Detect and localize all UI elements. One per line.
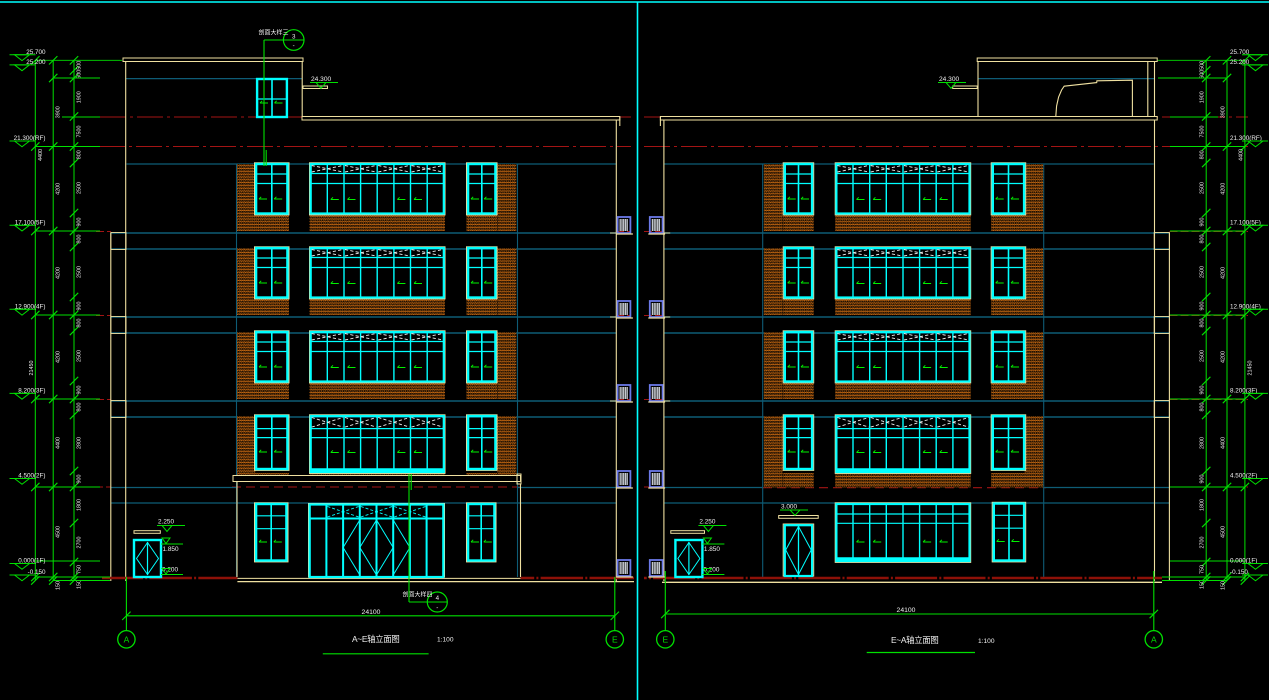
svg-text:2500: 2500 [1200, 266, 1206, 278]
svg-text:1800: 1800 [77, 499, 83, 511]
svg-text:7500: 7500 [77, 126, 83, 138]
svg-text:800: 800 [77, 403, 83, 412]
svg-text:900: 900 [1200, 475, 1206, 484]
svg-text:4200: 4200 [1221, 351, 1227, 363]
svg-text:800: 800 [77, 150, 83, 159]
svg-text:800: 800 [1200, 235, 1206, 244]
svg-text:-: - [436, 605, 438, 612]
svg-text:150: 150 [56, 581, 62, 590]
svg-text:2500: 2500 [1200, 182, 1206, 194]
svg-text:2.250: 2.250 [158, 519, 174, 526]
svg-text:900: 900 [77, 475, 83, 484]
svg-text:24100: 24100 [362, 609, 381, 616]
svg-text:900: 900 [1200, 218, 1206, 227]
svg-text:600: 600 [1200, 70, 1206, 79]
svg-text:2700: 2700 [77, 537, 83, 549]
svg-text:900: 900 [77, 302, 83, 311]
svg-text:A: A [124, 635, 130, 645]
svg-text:-: - [293, 43, 295, 50]
svg-text:4200: 4200 [56, 351, 62, 363]
svg-text:2800: 2800 [1200, 437, 1206, 449]
svg-text:2.250: 2.250 [699, 519, 715, 526]
svg-text:4400: 4400 [56, 437, 62, 449]
svg-text:800: 800 [77, 319, 83, 328]
svg-text:2500: 2500 [77, 266, 83, 278]
svg-text:24100: 24100 [897, 607, 916, 614]
svg-text:3900: 3900 [1221, 106, 1227, 118]
svg-text:2800: 2800 [77, 437, 83, 449]
svg-text:4200: 4200 [1221, 183, 1227, 195]
svg-text:150: 150 [77, 580, 83, 589]
svg-text:E: E [662, 635, 668, 645]
svg-text:21450: 21450 [29, 361, 35, 376]
svg-text:800: 800 [1200, 150, 1206, 159]
svg-text:A: A [1151, 635, 1157, 645]
svg-text:2500: 2500 [1200, 350, 1206, 362]
svg-text:剖面大样四: 剖面大样四 [403, 591, 433, 599]
svg-text:750: 750 [1200, 565, 1206, 574]
svg-text:24.300: 24.300 [311, 76, 332, 83]
svg-text:E: E [612, 635, 618, 645]
svg-text:7500: 7500 [1200, 126, 1206, 138]
svg-text:2500: 2500 [77, 182, 83, 194]
svg-text:800: 800 [1200, 403, 1206, 412]
svg-text:1.850: 1.850 [704, 546, 720, 553]
svg-text:500: 500 [77, 61, 83, 70]
svg-text:3.000: 3.000 [781, 503, 797, 510]
svg-text:4400: 4400 [38, 149, 44, 161]
svg-text:2700: 2700 [1200, 537, 1206, 549]
svg-text:4400: 4400 [1221, 437, 1227, 449]
svg-text:4400: 4400 [1238, 149, 1244, 161]
svg-text:4200: 4200 [56, 267, 62, 279]
svg-text:600: 600 [77, 70, 83, 79]
svg-text:800: 800 [1200, 319, 1206, 328]
svg-text:900: 900 [1200, 302, 1206, 311]
svg-text:4500: 4500 [56, 526, 62, 538]
svg-text:4: 4 [436, 595, 440, 602]
svg-text:A~E轴立面图: A~E轴立面图 [352, 634, 399, 644]
svg-text:900: 900 [1200, 386, 1206, 395]
svg-text:2500: 2500 [77, 350, 83, 362]
svg-text:750: 750 [77, 565, 83, 574]
svg-text:21450: 21450 [1247, 361, 1253, 376]
svg-text:800: 800 [77, 235, 83, 244]
svg-text:1800: 1800 [1200, 499, 1206, 511]
svg-text:1900: 1900 [1200, 91, 1206, 103]
svg-text:1:100: 1:100 [978, 638, 995, 645]
svg-text:24.300: 24.300 [939, 76, 960, 83]
svg-text:1:100: 1:100 [437, 637, 454, 644]
svg-text:900: 900 [77, 218, 83, 227]
svg-text:3900: 3900 [56, 106, 62, 118]
svg-text:500: 500 [1200, 61, 1206, 70]
svg-text:900: 900 [77, 386, 83, 395]
svg-text:150: 150 [1221, 581, 1227, 590]
svg-text:1.850: 1.850 [163, 546, 179, 553]
svg-text:E~A轴立面图: E~A轴立面图 [891, 635, 938, 645]
svg-text:150: 150 [1200, 580, 1206, 589]
svg-text:1900: 1900 [77, 91, 83, 103]
svg-text:3: 3 [292, 34, 296, 41]
svg-text:4200: 4200 [56, 183, 62, 195]
svg-text:4500: 4500 [1221, 526, 1227, 538]
svg-text:剖面大样三: 剖面大样三 [259, 29, 289, 37]
svg-text:4200: 4200 [1221, 267, 1227, 279]
